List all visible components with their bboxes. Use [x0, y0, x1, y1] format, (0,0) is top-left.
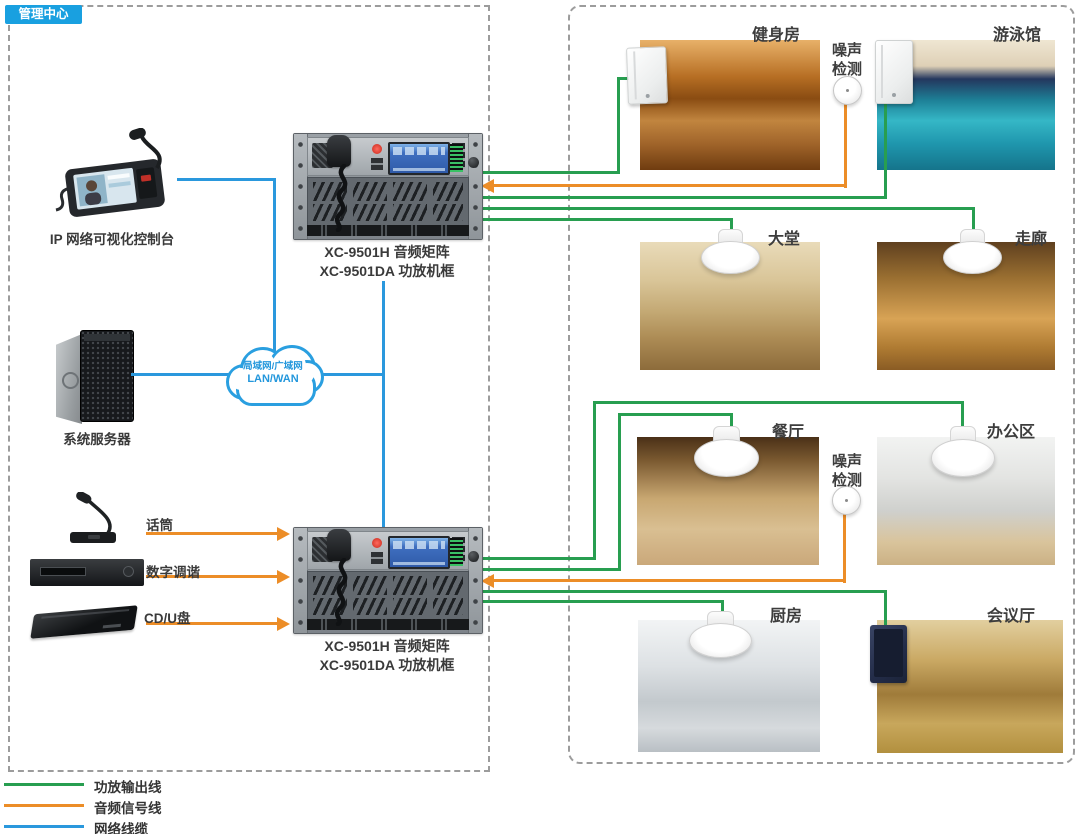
- audio-arrow-cd: [277, 617, 290, 631]
- gym-photo: [640, 40, 820, 170]
- rack-unit-bottom: [293, 527, 483, 634]
- ceiling-speaker-corridor: [943, 229, 1000, 274]
- panel-buttons: [371, 158, 383, 170]
- ceiling-speaker-kitchen: [689, 611, 750, 658]
- corridor-label: 走廊: [1015, 225, 1047, 249]
- digital-tuner-device: [30, 559, 144, 586]
- rack1-label: XC-9501H 音频矩阵 XC-9501DA 功放机框: [288, 243, 486, 281]
- pool-label: 游泳馆: [993, 21, 1041, 45]
- network-line-console-drop: [273, 178, 276, 352]
- volume-knob: [468, 157, 479, 168]
- wall-speaker-gym: [626, 46, 668, 104]
- amp-line-restaurant-top: [618, 413, 733, 416]
- cloud-text: 局域网/广域网 LAN/WAN: [224, 361, 322, 386]
- noise-detect-label-mid: 噪声检测: [829, 452, 865, 490]
- network-line-console: [177, 178, 276, 181]
- noise-sensor-restaurant: [832, 486, 861, 515]
- server-device: [56, 330, 136, 425]
- volume-knob: [468, 551, 479, 562]
- cloud-label-en: LAN/WAN: [224, 373, 322, 386]
- network-line-server: [131, 373, 232, 376]
- amp-line-kitchen: [481, 600, 724, 603]
- rack1-label-line1: XC-9501H 音频矩阵: [288, 243, 486, 262]
- legend-swatch-audio-signal: [4, 804, 84, 807]
- led-meter: [448, 536, 465, 568]
- amp-line-restaurant-rise: [618, 413, 621, 571]
- audio-line-noise-restaurant: [493, 579, 845, 582]
- legend-label-audio-signal: 音频信号线: [94, 797, 162, 817]
- handheld-mic: [327, 135, 351, 167]
- rack-rail: [468, 528, 482, 633]
- amp-line-lobby: [481, 218, 733, 221]
- amp-line-office-rise: [593, 401, 596, 560]
- noise-sensor-gym: [833, 76, 862, 105]
- legend-swatch-amp-output: [4, 783, 84, 786]
- amp-line-pool-rise: [884, 100, 887, 199]
- noise-detect-label-top: 噪声检测: [829, 41, 865, 79]
- amp-line-conference-drop: [884, 590, 887, 628]
- mic-cord: [330, 164, 356, 232]
- mic-label: 话筒: [146, 514, 173, 534]
- rack-rail: [468, 134, 482, 239]
- tuner-label: 数字调谐: [146, 561, 200, 581]
- gym-label: 健身房: [752, 21, 800, 45]
- audio-line-noise-gym: [493, 184, 846, 187]
- rack-rail: [294, 528, 308, 633]
- handheld-mic: [327, 529, 351, 561]
- rack-unit-top: [293, 133, 483, 240]
- solution-diagram: 管理中心: [0, 0, 1080, 834]
- power-button: [372, 144, 382, 154]
- ip-console-illustration: [45, 128, 180, 228]
- amp-line-corridor: [481, 207, 975, 210]
- legend-label-amp-output: 功放输出线: [94, 776, 162, 796]
- amp-line-pool: [481, 196, 887, 199]
- ip-console-device: [45, 128, 180, 228]
- audio-line-noise-restaurant-drop: [843, 510, 846, 583]
- audio-line-noise-gym-drop: [844, 102, 847, 188]
- panel-buttons: [371, 552, 383, 564]
- network-line-racks: [382, 281, 385, 530]
- amp-line-conference: [481, 590, 887, 593]
- lcd-screen: [388, 536, 450, 569]
- legend-label-network: 网络线缆: [94, 818, 148, 834]
- amp-line-office-drop: [961, 401, 964, 429]
- management-center-badge: 管理中心: [5, 5, 82, 24]
- office-label: 办公区: [987, 418, 1035, 442]
- paging-mic-device: [58, 492, 128, 547]
- rack2-label-line1: XC-9501H 音频矩阵: [288, 637, 486, 656]
- amp-line-office: [481, 557, 596, 560]
- ceiling-speaker-lobby: [701, 229, 758, 274]
- kitchen-label: 厨房: [770, 602, 802, 626]
- cloud-label-cn: 局域网/广域网: [224, 361, 322, 373]
- wall-speaker-pool: [875, 40, 913, 104]
- server-front-panel: [80, 330, 134, 422]
- lan-wan-cloud: 局域网/广域网 LAN/WAN: [224, 344, 322, 404]
- mic-cord: [330, 558, 356, 626]
- amp-line-office-top: [593, 401, 964, 404]
- cabinet-speaker-conference: [870, 625, 907, 683]
- amp-line-gym: [481, 171, 620, 174]
- rack-rail: [294, 134, 308, 239]
- lcd-screen: [388, 142, 450, 175]
- server-side-panel: [56, 334, 82, 424]
- lobby-label: 大堂: [768, 225, 800, 249]
- rack2-label: XC-9501H 音频矩阵 XC-9501DA 功放机框: [288, 637, 486, 675]
- rack1-label-line2: XC-9501DA 功放机框: [288, 262, 486, 281]
- power-button: [372, 538, 382, 548]
- conference-label: 会议厅: [987, 602, 1035, 626]
- console-label: IP 网络可视化控制台: [38, 230, 186, 249]
- audio-arrow-mic: [277, 527, 290, 541]
- ceiling-speaker-restaurant: [694, 426, 757, 477]
- rack2-label-line2: XC-9501DA 功放机框: [288, 656, 486, 675]
- legend-swatch-network: [4, 825, 84, 828]
- led-meter: [448, 142, 465, 174]
- cd-usb-device: [32, 602, 140, 642]
- cd-label: CD/U盘: [144, 607, 191, 627]
- server-label: 系统服务器: [38, 430, 156, 449]
- amp-line-restaurant: [481, 568, 621, 571]
- amp-line-gym-rise: [617, 77, 620, 174]
- ceiling-speaker-office: [931, 426, 993, 477]
- restaurant-label: 餐厅: [772, 418, 804, 442]
- audio-arrow-tuner: [277, 570, 290, 584]
